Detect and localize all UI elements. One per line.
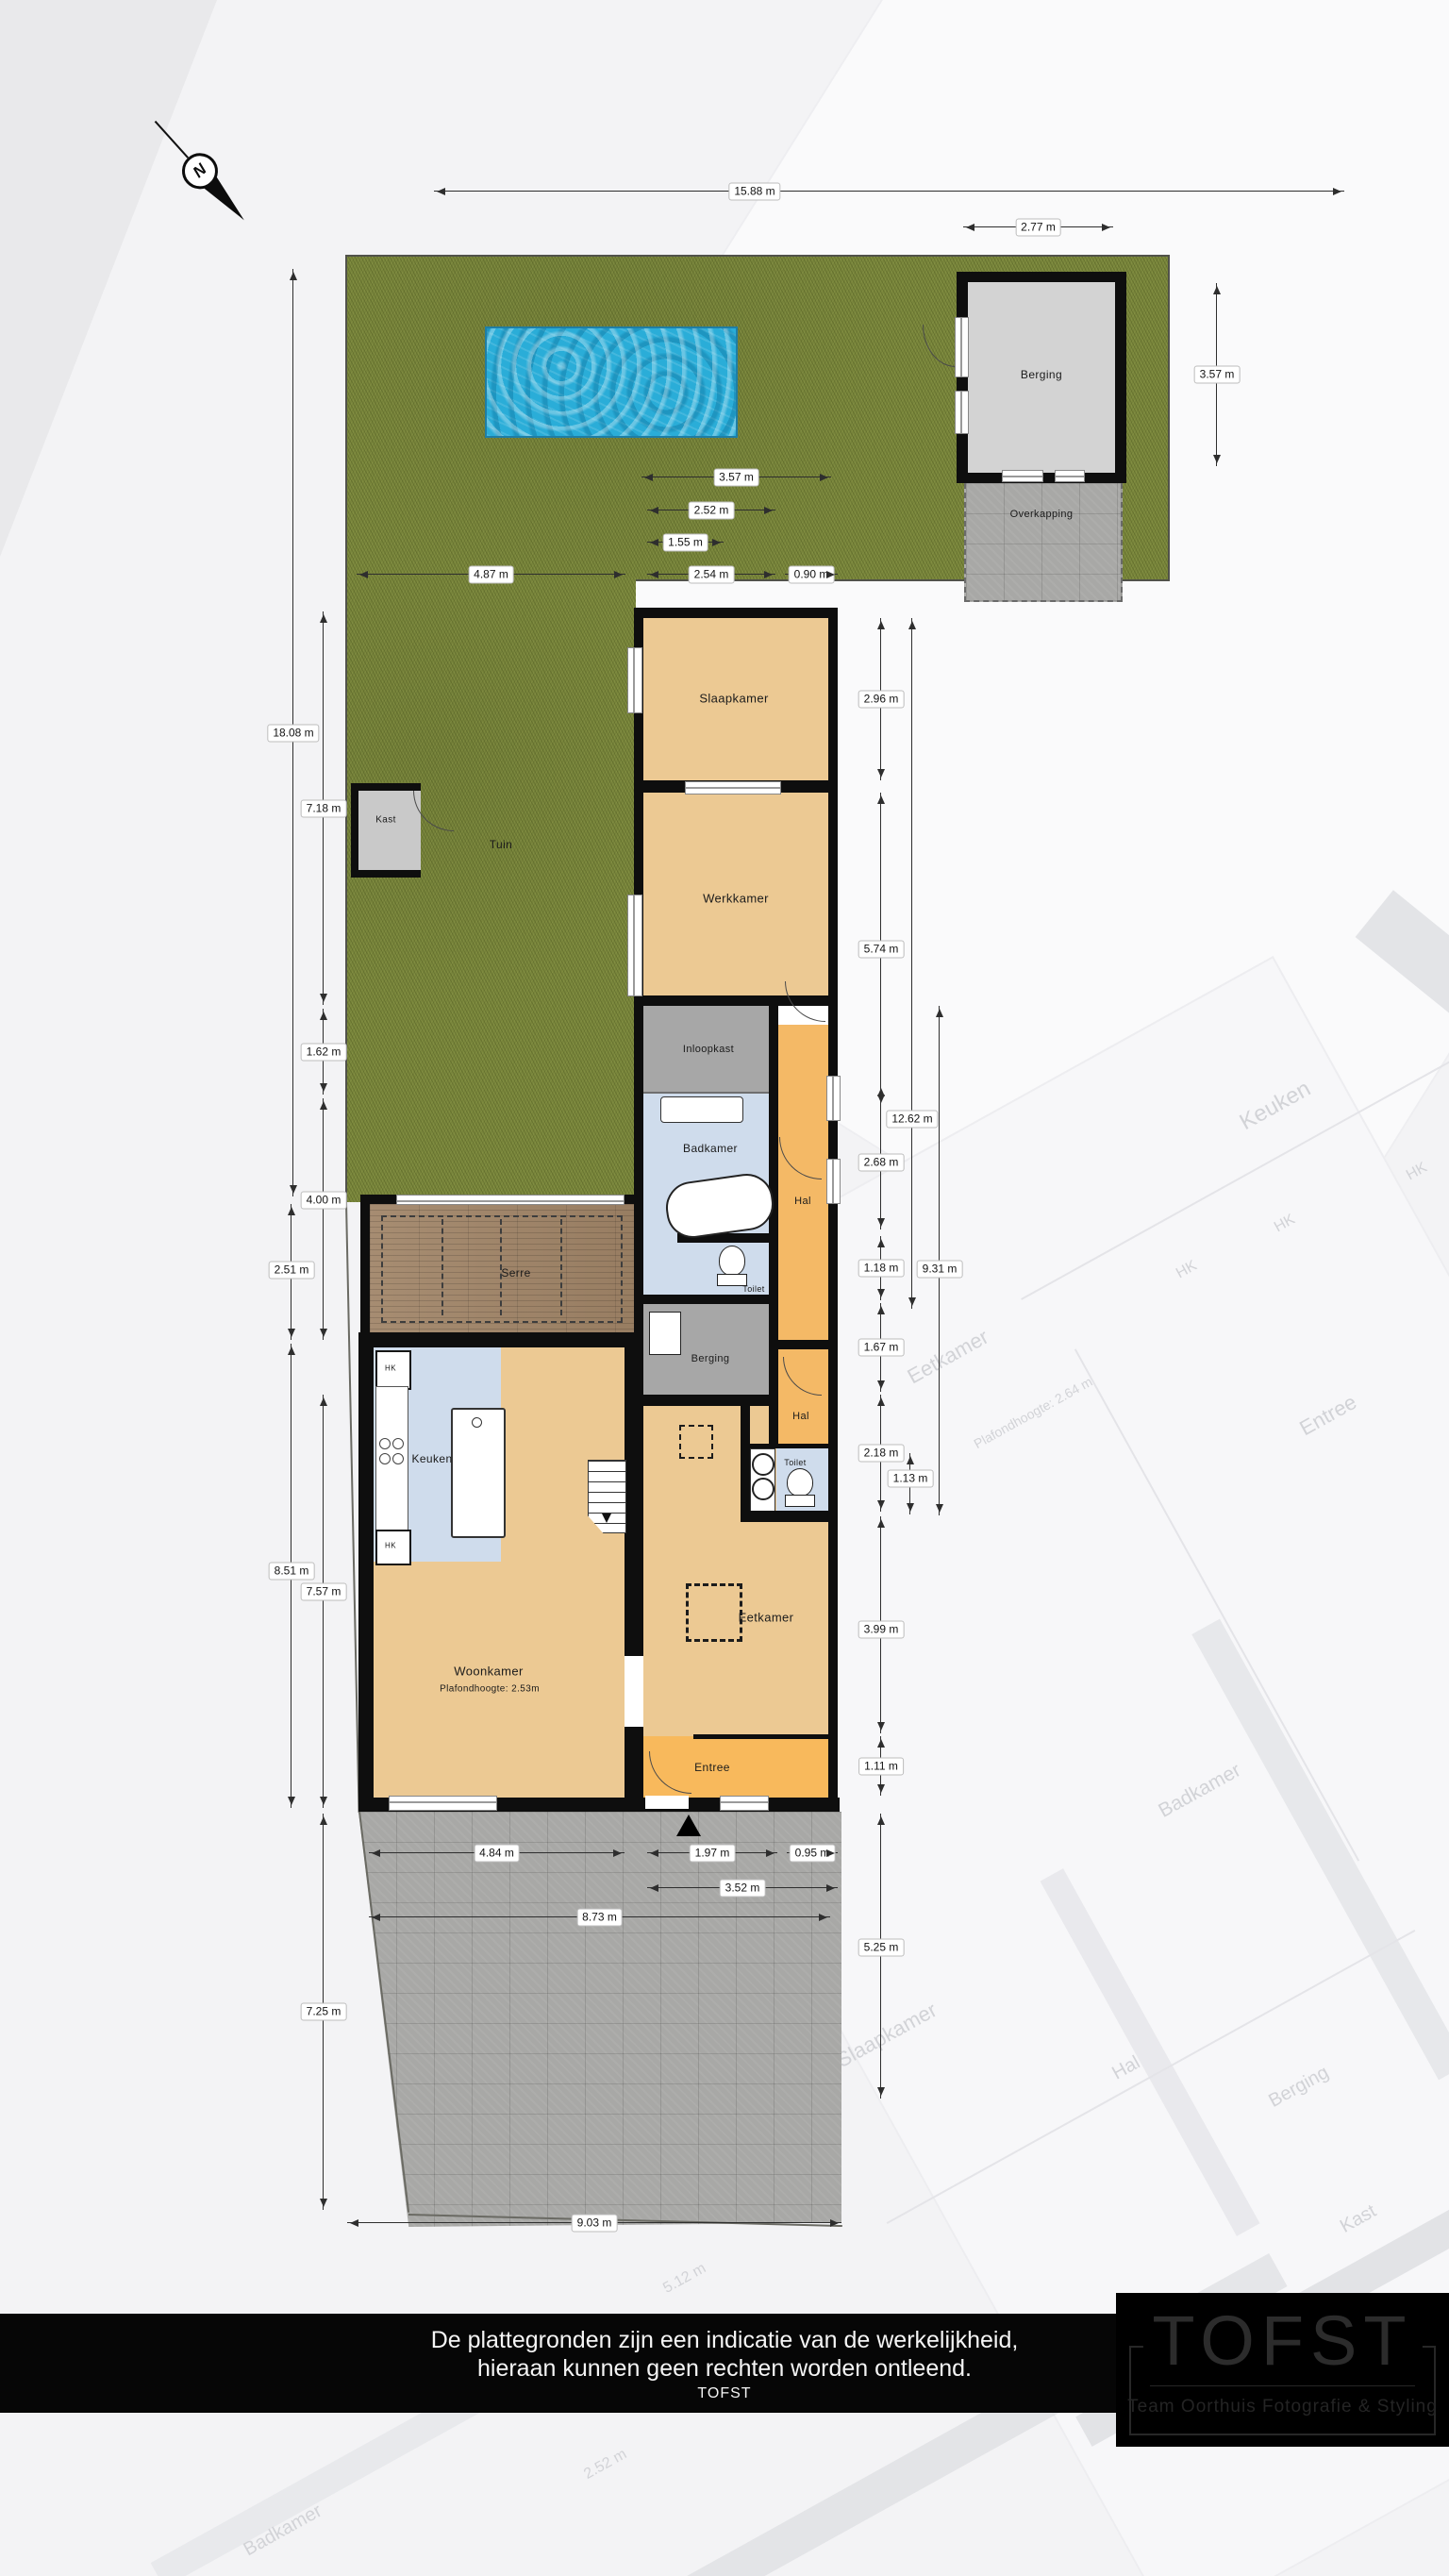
dimension-label: 7.57 m xyxy=(301,1583,347,1601)
dimension-label: 8.73 m xyxy=(576,1909,623,1927)
dimension-line: 4.84 m xyxy=(369,1852,625,1853)
dimension-line: 2.18 m xyxy=(880,1395,881,1512)
dimension-line: 3.99 m xyxy=(880,1516,881,1733)
dimension-line: 3.57 m xyxy=(641,477,831,477)
dimension-line: 0.90 m xyxy=(785,574,838,575)
dimension-line: 5.25 m xyxy=(880,1814,881,2099)
dimension-line: 15.88 m xyxy=(434,191,1344,192)
dimension-label: 1.62 m xyxy=(301,1043,347,1061)
dimension-line: 2.77 m xyxy=(963,226,1113,227)
dimension-label: 2.68 m xyxy=(858,1154,905,1172)
dimension-line: 18.08 m xyxy=(292,269,293,1196)
dimension-line: 8.73 m xyxy=(369,1916,830,1917)
dimension-label: 1.13 m xyxy=(888,1470,934,1488)
dimension-line: 12.62 m xyxy=(911,618,912,1309)
floorplan-canvas: KeukenHKHKHKEetkamerPlafondhoogte: 2.64 … xyxy=(0,0,1449,2576)
dimension-label: 8.51 m xyxy=(269,1563,315,1581)
dimension-label: 9.31 m xyxy=(917,1261,963,1279)
logo-title: TOFST xyxy=(1142,2300,1422,2382)
dimensions-layer: 15.88 m2.77 m3.57 m2.52 m1.55 m4.87 m2.5… xyxy=(0,0,1449,2576)
dimension-line: 1.55 m xyxy=(647,542,724,543)
dimension-line: 2.52 m xyxy=(647,510,775,510)
dimension-line: 1.62 m xyxy=(323,1009,324,1095)
dimension-line: 8.51 m xyxy=(291,1344,291,1808)
dimension-label: 7.25 m xyxy=(301,2003,347,2021)
dimension-label: 2.54 m xyxy=(689,566,735,584)
dimension-line: 5.74 m xyxy=(880,793,881,1106)
dimension-label: 1.18 m xyxy=(858,1260,905,1278)
dimension-line: 1.67 m xyxy=(880,1303,881,1392)
dimension-line: 7.25 m xyxy=(323,1814,324,2210)
dimension-label: 4.00 m xyxy=(301,1192,347,1210)
dimension-label: 3.57 m xyxy=(713,469,759,487)
dimension-label: 4.87 m xyxy=(468,566,514,584)
dimension-label: 1.11 m xyxy=(858,1757,904,1775)
dimension-line: 3.57 m xyxy=(1216,283,1217,466)
dimension-line: 4.00 m xyxy=(323,1098,324,1340)
dimension-label: 3.57 m xyxy=(1194,366,1241,384)
dimension-line: 1.97 m xyxy=(647,1852,777,1853)
dimension-line: 7.18 m xyxy=(323,611,324,1005)
dimension-line: 1.11 m xyxy=(880,1736,881,1796)
dimension-label: 2.52 m xyxy=(689,502,735,520)
dimension-line: 4.87 m xyxy=(357,574,625,575)
dimension-label: 18.08 m xyxy=(267,724,319,742)
dimension-label: 3.99 m xyxy=(858,1621,905,1639)
dimension-label: 1.67 m xyxy=(858,1339,905,1357)
dimension-label: 3.52 m xyxy=(720,1880,766,1898)
dimension-label: 1.97 m xyxy=(690,1845,736,1863)
dimension-label: 2.77 m xyxy=(1015,219,1061,237)
dimension-line: 2.96 m xyxy=(880,618,881,780)
dimension-line: 9.31 m xyxy=(939,1006,940,1515)
tofst-logo: TOFST Team Oorthuis Fotografie & Styling xyxy=(1116,2293,1449,2447)
dimension-label: 0.95 m xyxy=(790,1845,836,1863)
dimension-line: 0.95 m xyxy=(787,1852,838,1853)
dimension-line: 3.52 m xyxy=(647,1887,838,1888)
dimension-label: 1.55 m xyxy=(662,534,708,552)
dimension-label: 9.03 m xyxy=(572,2215,618,2233)
dimension-label: 5.25 m xyxy=(858,1939,905,1957)
logo-rule xyxy=(1150,2385,1415,2386)
dimension-label: 4.84 m xyxy=(474,1845,520,1863)
dimension-label: 5.74 m xyxy=(858,941,905,959)
dimension-label: 2.96 m xyxy=(858,691,905,709)
dimension-label: 2.51 m xyxy=(269,1262,315,1280)
dimension-label: 0.90 m xyxy=(789,566,835,584)
dimension-label: 12.62 m xyxy=(886,1111,938,1129)
dimension-line: 1.18 m xyxy=(880,1236,881,1300)
dimension-line: 7.57 m xyxy=(323,1395,324,1808)
dimension-line: 9.03 m xyxy=(347,2222,841,2223)
dimension-label: 7.18 m xyxy=(301,799,347,817)
dimension-line: 1.13 m xyxy=(909,1453,910,1514)
dimension-line: 2.68 m xyxy=(880,1085,881,1229)
dimension-label: 15.88 m xyxy=(728,183,780,201)
dimension-line: 2.54 m xyxy=(647,574,775,575)
dimension-label: 2.18 m xyxy=(858,1445,905,1463)
dimension-line: 2.51 m xyxy=(291,1204,291,1340)
logo-subtitle: Team Oorthuis Fotografie & Styling xyxy=(1116,2397,1449,2417)
